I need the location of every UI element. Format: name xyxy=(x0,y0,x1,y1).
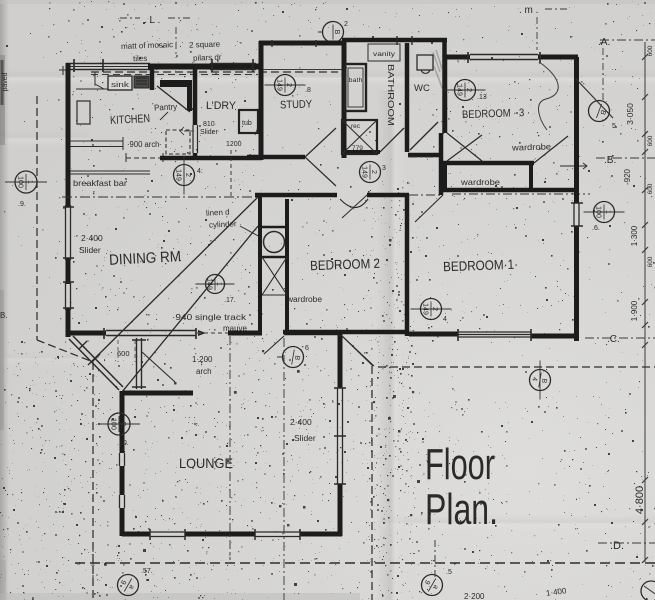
svg-text:cylinder: cylinder xyxy=(209,219,237,229)
svg-text:149: 149 xyxy=(276,79,283,91)
svg-text:·940 single track: ·940 single track xyxy=(172,312,247,322)
svg-text:B: B xyxy=(119,422,126,427)
svg-text:Slider: Slider xyxy=(294,433,316,443)
svg-text:149: 149 xyxy=(422,303,429,315)
svg-text:2: 2 xyxy=(370,170,377,174)
svg-text:100: 100 xyxy=(595,206,602,218)
svg-text:2: 2 xyxy=(285,83,292,87)
svg-text:2: 2 xyxy=(184,173,191,177)
svg-text:-920: -920 xyxy=(623,168,632,185)
svg-text:4: 4 xyxy=(443,316,447,323)
svg-text:1: 1 xyxy=(26,180,33,184)
svg-text:.8: .8 xyxy=(305,87,311,94)
svg-text:pilars dr: pilars dr xyxy=(193,53,222,63)
svg-text:149: 149 xyxy=(175,169,182,181)
svg-text:BEDROOM·1·: BEDROOM·1· xyxy=(443,257,518,275)
svg-text:bath: bath xyxy=(349,77,363,84)
svg-text:1·900: 1·900 xyxy=(630,300,639,321)
svg-text:BEDROOM 2: BEDROOM 2 xyxy=(310,256,380,273)
svg-text:Slider: Slider xyxy=(79,245,101,255)
svg-text:.5: .5 xyxy=(446,569,452,576)
svg-text:.6.: .6. xyxy=(592,225,600,232)
svg-text:3·050: 3·050 xyxy=(625,103,635,125)
svg-text:. m .: . m . xyxy=(519,5,538,16)
svg-text:wardrobe: wardrobe xyxy=(460,177,500,187)
svg-text:5: 5 xyxy=(612,123,616,130)
svg-text:2·400: 2·400 xyxy=(81,233,103,243)
svg-text:810: 810 xyxy=(203,121,215,128)
svg-text:4:: 4: xyxy=(197,168,203,175)
svg-text:matt of mosaic: matt of mosaic xyxy=(121,40,173,51)
svg-text:·900 arch·: ·900 arch· xyxy=(127,140,162,149)
svg-text:.13: .13 xyxy=(477,94,487,101)
svg-text:2: 2 xyxy=(465,88,472,92)
svg-text:BEDROOM · 3 ·: BEDROOM · 3 · xyxy=(462,107,530,121)
svg-text:STUDY: STUDY xyxy=(280,98,313,111)
svg-text:.10.: .10. xyxy=(117,440,129,447)
svg-text:Slider: Slider xyxy=(200,129,219,136)
svg-text:149: 149 xyxy=(206,278,213,290)
svg-text:4·800: 4·800 xyxy=(634,486,646,514)
svg-text:1: 1 xyxy=(215,282,222,286)
svg-text:tiles: tiles xyxy=(133,54,148,63)
svg-text:KITCHEN: KITCHEN xyxy=(110,113,151,127)
svg-text:779: 779 xyxy=(352,145,363,152)
svg-text:.17.: .17. xyxy=(224,297,236,304)
svg-text:rec: rec xyxy=(351,123,361,130)
svg-text:1·200: 1·200 xyxy=(192,355,213,364)
svg-text:Floor: Floor xyxy=(425,440,495,489)
svg-text:600: 600 xyxy=(647,45,654,56)
svg-text:B: B xyxy=(333,30,340,35)
svg-text:600: 600 xyxy=(647,256,654,267)
svg-text:wardrobe: wardrobe xyxy=(511,141,552,152)
svg-text:.D.: .D. xyxy=(610,540,624,552)
svg-text:tub: tub xyxy=(242,120,252,127)
svg-text:600: 600 xyxy=(647,135,654,146)
svg-text:100: 100 xyxy=(17,176,24,188)
svg-text:600: 600 xyxy=(117,349,130,358)
svg-text:2: 2 xyxy=(431,307,438,311)
svg-text:. L .: . L . xyxy=(144,15,160,26)
svg-text:3: 3 xyxy=(382,165,386,172)
svg-text:149: 149 xyxy=(456,84,463,96)
svg-text:2: 2 xyxy=(344,21,348,28)
svg-text:149: 149 xyxy=(361,166,368,178)
svg-text:Pantry: Pantry xyxy=(154,101,178,112)
svg-text:arch: arch xyxy=(196,367,212,376)
svg-text:wardrobe: wardrobe xyxy=(286,295,323,304)
svg-text:2·400: 2·400 xyxy=(290,417,312,427)
svg-text:2 square: 2 square xyxy=(189,40,221,50)
svg-text:LOUNGE: LOUNGE xyxy=(179,455,233,471)
svg-text:vanity: vanity xyxy=(373,51,396,58)
svg-text:BATHROOM: BATHROOM xyxy=(386,64,395,126)
svg-text:.A.: .A. xyxy=(598,37,610,48)
svg-text:.9.: .9. xyxy=(18,201,26,208)
svg-text:1200: 1200 xyxy=(226,141,242,148)
svg-text:2·200: 2·200 xyxy=(464,592,485,600)
svg-text:100: 100 xyxy=(110,418,117,430)
svg-text:linen d: linen d xyxy=(206,208,230,218)
svg-text:1·300: 1·300 xyxy=(630,225,639,246)
svg-text:.C.: .C. xyxy=(607,334,620,345)
svg-text:B.: B. xyxy=(0,311,8,320)
svg-text:.B.: .B. xyxy=(604,155,616,166)
svg-text:breakfast bar: breakfast bar xyxy=(73,178,127,188)
svg-text:6: 6 xyxy=(305,345,309,352)
svg-text:600: 600 xyxy=(647,183,654,194)
svg-text:L’DRY: L’DRY xyxy=(206,100,237,112)
svg-text:1: 1 xyxy=(604,210,611,214)
svg-text:.57.: .57. xyxy=(141,568,153,575)
svg-text:sink: sink xyxy=(111,80,129,89)
svg-text:Plan.: Plan. xyxy=(425,485,498,534)
svg-text:WC: WC xyxy=(414,83,430,94)
